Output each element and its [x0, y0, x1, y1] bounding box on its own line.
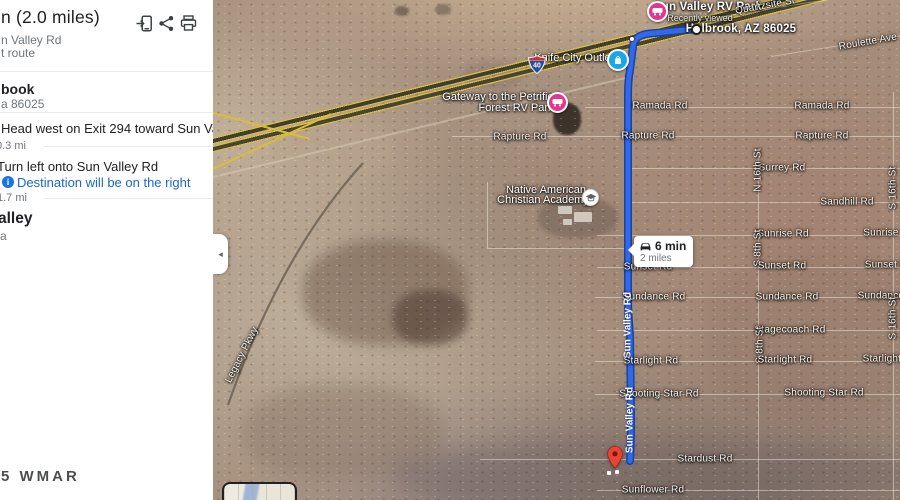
- road-label-rapture-rd: Rapture Rd: [493, 132, 546, 143]
- google-maps-directions-view: n (2.0 miles) n Valley Rd t route book a…: [0, 0, 900, 500]
- poi-label-academy-line2[interactable]: Christian Academy: [497, 194, 589, 206]
- road-label-starlight-rd: Starlight Rd: [758, 355, 813, 366]
- destination-pin-icon[interactable]: [607, 446, 623, 469]
- direction-step-2[interactable]: Turn left onto Sun Valley Rd: [0, 159, 158, 174]
- car-icon: [639, 241, 652, 252]
- divider: [44, 198, 213, 199]
- road-label-rapture-rd: Rapture Rd: [621, 131, 674, 142]
- print-icon[interactable]: [180, 15, 197, 32]
- road-label-sandhill-rd: Sandhill Rd: [820, 197, 873, 208]
- poi-label-gateway-rv-park-line2[interactable]: Forest RV Park: [479, 102, 554, 114]
- road-label-sunset-rd: Sunset Rd: [865, 260, 900, 271]
- origin-detail: a 86025: [1, 97, 44, 111]
- direction-step-1[interactable]: Head west on Exit 294 toward Sun Valley …: [1, 121, 213, 136]
- destination-side-note: Destination will be on the right: [17, 175, 190, 190]
- rv-park-marker-icon[interactable]: [547, 92, 568, 113]
- map-canvas[interactable]: 40: [213, 0, 900, 500]
- route-info-bubble[interactable]: 6 min 2 miles: [634, 236, 693, 267]
- school-marker-icon[interactable]: [582, 189, 599, 206]
- road-label-starlight-rd: Starlight Rd: [624, 356, 679, 367]
- info-icon: i: [2, 176, 14, 188]
- watermark-logo: 5 WMAR: [1, 468, 80, 485]
- divider: [0, 112, 213, 113]
- route-distance: 2 miles: [640, 253, 686, 264]
- map-layer-toggle[interactable]: [222, 482, 297, 500]
- arrival-detail: a: [0, 229, 7, 243]
- route-layer: [213, 0, 900, 500]
- divider: [44, 146, 213, 147]
- step-2-distance: 1.7 mi: [0, 192, 27, 204]
- road-label-ramada-rd: Ramada Rd: [632, 101, 687, 112]
- road-label-sunrise-rd: Sunrise Rd: [863, 228, 900, 239]
- road-label-sun-valley-rd: Sun Valley Rd: [625, 387, 636, 453]
- road-label-stardust-rd: Stardust Rd: [677, 454, 732, 465]
- shopping-marker-icon[interactable]: [607, 49, 629, 71]
- route-type-text: t route: [1, 46, 35, 60]
- divider: [0, 71, 213, 72]
- route-via-text: n Valley Rd: [1, 33, 61, 47]
- interstate-40-shield-icon: 40: [528, 55, 546, 74]
- step-1-distance: 0.3 mi: [0, 140, 26, 152]
- origin-name: book: [1, 81, 34, 97]
- road-label-ramada-rd: Ramada Rd: [794, 101, 849, 112]
- road-label-starlight-rd: Starlight Rd: [863, 354, 900, 365]
- directions-panel: n (2.0 miles) n Valley Rd t route book a…: [0, 0, 213, 500]
- route-start-dot[interactable]: [691, 24, 702, 35]
- start-waypoint-label[interactable]: Holbrook, AZ 86025: [686, 23, 797, 35]
- road-label-sundance-rd: Sundance Rd: [756, 292, 819, 303]
- send-to-phone-icon[interactable]: [136, 15, 153, 32]
- recently-viewed-label: Recently viewed: [667, 13, 733, 23]
- chevron-left-icon: ◂: [218, 249, 223, 260]
- road-label-rapture-rd: Rapture Rd: [795, 131, 848, 142]
- road-label-sun-valley-rd: Sun Valley Rd: [623, 292, 634, 358]
- road-label-shooting-star-rd: Shooting Star Rd: [784, 388, 863, 399]
- road-label-s-16th-st: S 16th St: [888, 297, 899, 340]
- svg-text:40: 40: [533, 62, 541, 69]
- collapse-panel-button[interactable]: ◂: [213, 234, 228, 274]
- arrival-name: alley: [0, 210, 32, 228]
- poi-label-knife-city-outlet[interactable]: Knife City Outlet: [534, 52, 613, 64]
- road-label-n-16th-st: N 16th St: [753, 148, 764, 192]
- rv-park-marker-icon[interactable]: [647, 1, 668, 22]
- road-label-sunrise-rd: Sunrise Rd: [757, 229, 808, 240]
- road-label-s-16th-st: S 16th St: [888, 167, 899, 210]
- route-duration: 6 min: [655, 239, 686, 253]
- route-turn-dot: [629, 36, 635, 42]
- route-summary-title: n (2.0 miles): [1, 7, 100, 28]
- road-label-sunset-rd: Sunset Rd: [758, 261, 807, 272]
- share-icon[interactable]: [158, 15, 175, 32]
- road-label-surrey-rd: Surrey Rd: [759, 163, 806, 174]
- road-label-sunflower-rd: Sunflower Rd: [622, 485, 684, 496]
